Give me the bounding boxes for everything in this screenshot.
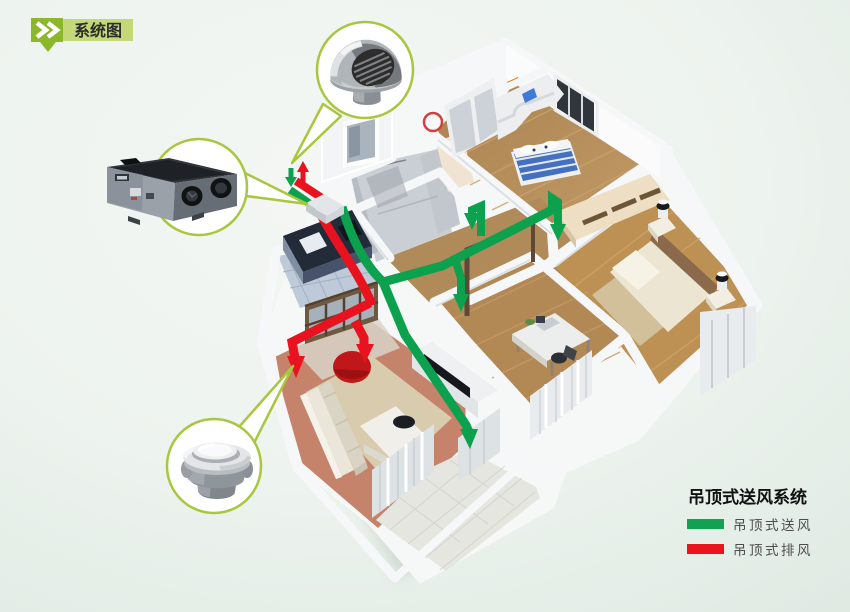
svg-text:吊顶式送风系统: 吊顶式送风系统: [688, 487, 807, 507]
svg-text:系统图: 系统图: [74, 21, 122, 40]
svg-text:吊顶式排风: 吊顶式排风: [733, 543, 813, 558]
svg-text:吊顶式送风: 吊顶式送风: [733, 518, 813, 533]
